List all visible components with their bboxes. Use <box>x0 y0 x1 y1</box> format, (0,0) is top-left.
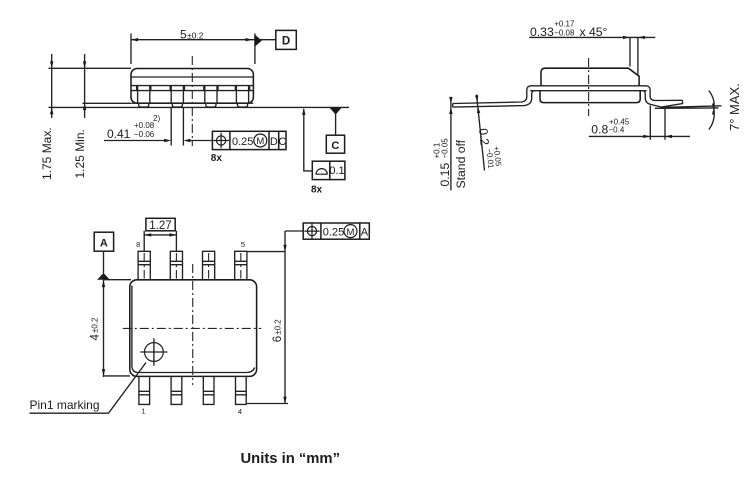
svg-text:A: A <box>361 226 369 238</box>
svg-text:5: 5 <box>180 27 187 41</box>
svg-text:±0.2: ±0.2 <box>274 319 283 335</box>
svg-text:7° MAX.: 7° MAX. <box>727 83 742 131</box>
svg-text:8x: 8x <box>311 185 323 196</box>
svg-text:6: 6 <box>272 336 284 342</box>
svg-text:C: C <box>331 140 339 152</box>
svg-text:+0.17: +0.17 <box>554 20 575 29</box>
svg-text:0.25: 0.25 <box>232 136 253 148</box>
svg-text:0.41: 0.41 <box>107 127 131 141</box>
svg-text:−0.08: −0.08 <box>554 29 575 38</box>
svg-text:Units in “mm”: Units in “mm” <box>241 451 340 467</box>
svg-text:C: C <box>278 136 286 148</box>
svg-text:0.33: 0.33 <box>530 25 554 39</box>
svg-text:1.25 Min.: 1.25 Min. <box>73 129 87 178</box>
svg-text:±0.2: ±0.2 <box>90 317 99 333</box>
svg-text:−0.06: −0.06 <box>134 130 155 139</box>
svg-text:1.27: 1.27 <box>149 220 171 232</box>
svg-text:0.1: 0.1 <box>329 165 344 177</box>
svg-text:8x: 8x <box>211 153 223 164</box>
svg-text:4: 4 <box>238 407 242 416</box>
svg-text:0.8: 0.8 <box>591 122 608 136</box>
svg-text:M: M <box>347 227 355 238</box>
svg-text:0.15: 0.15 <box>438 163 452 187</box>
svg-text:4: 4 <box>89 334 101 341</box>
svg-text:±0.2: ±0.2 <box>187 30 204 40</box>
svg-text:0.25: 0.25 <box>323 226 344 238</box>
svg-text:Pin1 marking: Pin1 marking <box>30 398 100 412</box>
svg-text:M: M <box>256 136 264 147</box>
svg-text:Stand off: Stand off <box>454 139 468 188</box>
svg-text:−0.05: −0.05 <box>441 138 450 159</box>
svg-text:0.2: 0.2 <box>476 128 492 147</box>
svg-text:2): 2) <box>153 114 160 123</box>
svg-text:5: 5 <box>241 240 245 249</box>
svg-text:8: 8 <box>136 240 140 249</box>
svg-text:1.75 Max.: 1.75 Max. <box>40 127 54 180</box>
svg-text:D: D <box>270 136 278 148</box>
svg-text:x 45°: x 45° <box>580 25 608 39</box>
svg-text:1: 1 <box>141 406 145 415</box>
svg-text:D: D <box>282 36 290 48</box>
svg-text:A: A <box>100 237 108 249</box>
svg-text:−0.01: −0.01 <box>484 148 495 170</box>
svg-text:−0.4: −0.4 <box>609 126 625 135</box>
